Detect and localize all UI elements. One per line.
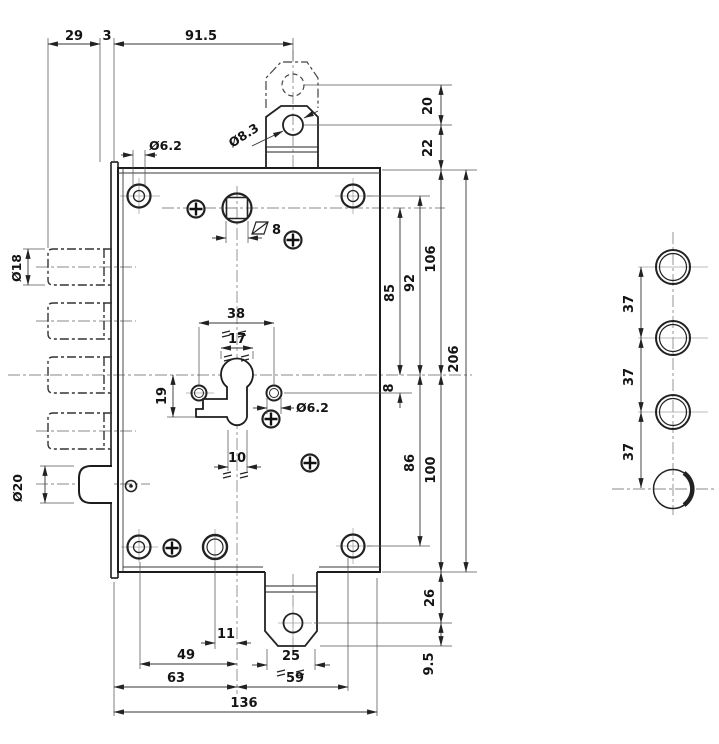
dim-label-29: 29: [65, 29, 83, 44]
equal-mark: [241, 355, 249, 361]
dim-label-100: 100: [424, 456, 439, 483]
bottom-tab-outline: [265, 572, 317, 646]
latch-bolt: [79, 466, 112, 503]
cylinder-hole-right-inner: [270, 389, 279, 398]
bottom-tab: [265, 572, 317, 646]
dim-label-dia62-mid: Ø6.2: [296, 400, 329, 415]
dim-label-49: 49: [177, 648, 195, 663]
dim-label-106: 106: [424, 245, 439, 272]
dim-label-37-1: 37: [622, 295, 637, 313]
equal-mark: [277, 670, 285, 676]
dimension-lines: [28, 44, 641, 712]
dim-label-206: 206: [447, 345, 462, 372]
dim-label-85: 85: [383, 284, 398, 302]
pin-hole-center: [129, 484, 133, 488]
dim-label-sq8: 8: [272, 223, 281, 238]
equal-mark: [223, 472, 231, 478]
dim-label-dia62-top: Ø6.2: [149, 138, 182, 153]
dim-label-3: 3: [102, 29, 111, 44]
screw: [263, 411, 280, 428]
dim-label-26: 26: [423, 589, 438, 607]
cylinder-hole-right-outer: [267, 386, 282, 401]
dim-label-92: 92: [403, 274, 418, 292]
dim-label-63: 63: [167, 671, 185, 686]
faceplate: [111, 162, 118, 578]
dim-label-9-5: 9.5: [422, 652, 437, 675]
dim-label-11: 11: [217, 627, 235, 642]
dim-label-19: 19: [155, 387, 170, 405]
equal-mark: [240, 472, 248, 478]
dim-label-91-5: 91.5: [185, 29, 217, 44]
dim-label-22: 22: [421, 139, 436, 157]
dim-label-10: 10: [228, 451, 246, 466]
dim-label-17: 17: [228, 332, 246, 347]
square-symbol-icon: [252, 222, 268, 234]
screw: [302, 455, 319, 472]
dim-label-59: 59: [286, 671, 304, 686]
deadbolts: [48, 249, 112, 449]
screw: [188, 201, 205, 218]
dim-label-37-2: 37: [622, 368, 637, 386]
dim-label-38: 38: [227, 307, 245, 322]
cylinder-keyhole: [196, 359, 253, 426]
screw: [285, 232, 302, 249]
lock-body-view: [48, 62, 380, 646]
lock-technical-drawing: 29 3 91.5 20 22 Ø6.2 Ø8.3 8 38 17 19 10 …: [0, 0, 719, 744]
dim-label-dia83: Ø8.3: [226, 120, 262, 150]
dim-label-25: 25: [282, 649, 300, 664]
dimension-labels: 29 3 91.5 20 22 Ø6.2 Ø8.3 8 38 17 19 10 …: [9, 29, 637, 711]
dim-label-8: 8: [382, 383, 397, 392]
dim-label-dia20: Ø20: [10, 474, 25, 502]
screw: [164, 540, 181, 557]
dim-label-86: 86: [403, 454, 418, 472]
drawing-sheet: 29 3 91.5 20 22 Ø6.2 Ø8.3 8 38 17 19 10 …: [0, 0, 719, 744]
dim-label-dia18: Ø18: [9, 254, 24, 282]
pin-hole: [126, 481, 137, 492]
dim-label-20: 20: [421, 97, 436, 115]
dim-label-136: 136: [230, 696, 257, 711]
dim-label-37-3: 37: [622, 443, 637, 461]
